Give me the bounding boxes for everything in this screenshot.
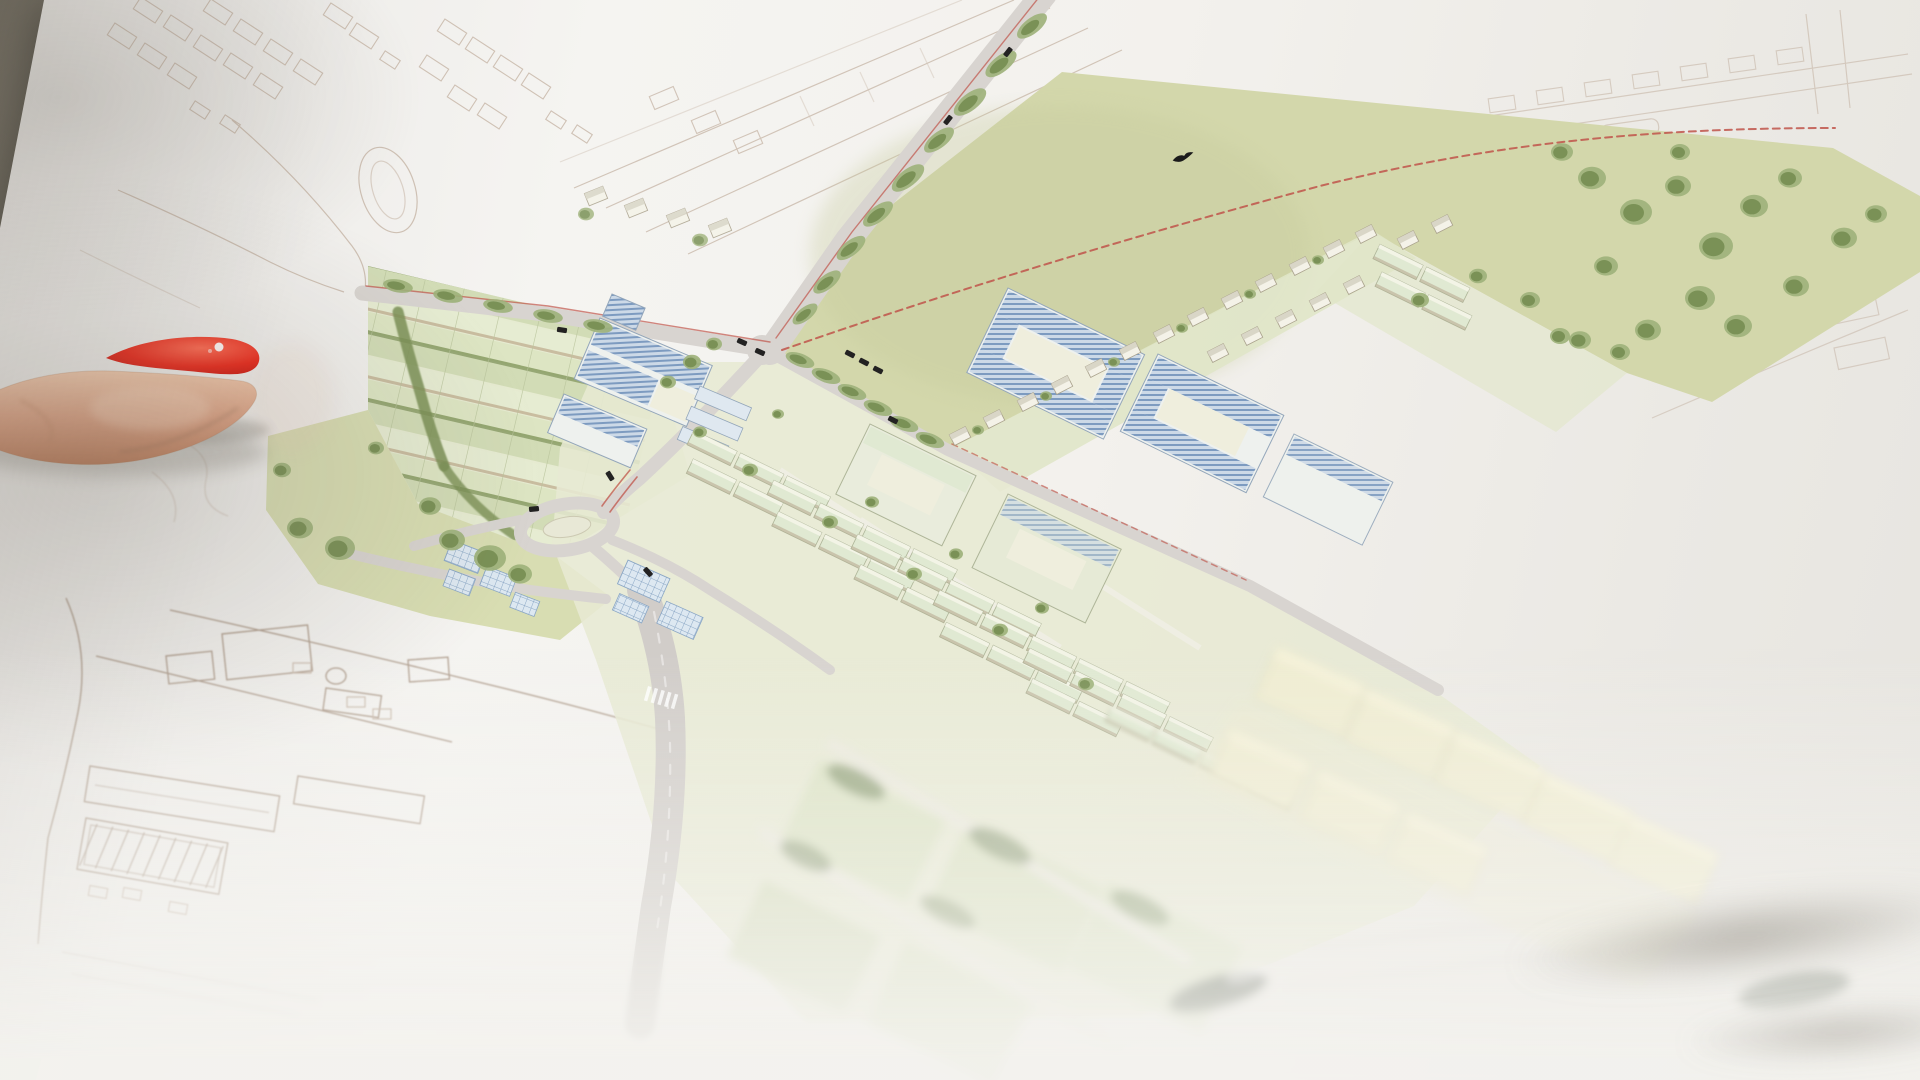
blurred-dark-marks bbox=[1166, 962, 1852, 1020]
masterplan-illustration bbox=[0, 0, 1920, 1080]
fingernail bbox=[106, 337, 259, 374]
nail-highlight bbox=[215, 343, 224, 352]
courtyard-block bbox=[1263, 434, 1393, 545]
blurred-dark-mark bbox=[1736, 965, 1852, 1016]
stadium-sketch bbox=[349, 140, 428, 240]
context-sketch-top-left bbox=[80, 0, 592, 308]
masterplan-paper bbox=[0, 0, 1920, 1080]
hatched-building-sketch bbox=[77, 818, 228, 894]
context-houses-top bbox=[578, 186, 732, 246]
long-building-sketch bbox=[84, 766, 279, 832]
paper-wrapper bbox=[0, 0, 1920, 1080]
video-still bbox=[0, 0, 1920, 1080]
